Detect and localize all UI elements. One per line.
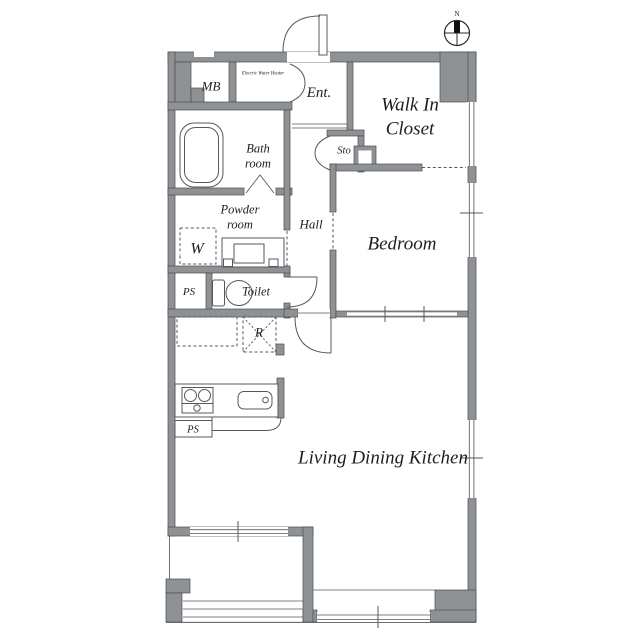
wall-segment	[206, 273, 212, 312]
label-entrance: Ent.	[306, 85, 332, 101]
wall-segment	[327, 130, 364, 136]
pillar-core	[359, 151, 372, 166]
label-powder-1: Powder	[220, 202, 260, 216]
wall-segment	[175, 62, 191, 104]
wall-segment	[166, 593, 182, 622]
wall-segment	[229, 62, 236, 102]
label-bathroom-2: room	[245, 156, 271, 170]
wall-segment	[168, 309, 290, 317]
label-storage: Sto	[337, 146, 350, 157]
wall-segment	[330, 164, 422, 171]
bathroom-folding-door	[246, 175, 274, 193]
wall-segment	[347, 62, 353, 130]
balcony-rails	[183, 601, 303, 617]
label-walk-in-closet-1: Walk In	[381, 95, 439, 116]
balcony-window	[190, 521, 288, 542]
label-washer: W	[190, 241, 205, 258]
wall-segment	[303, 527, 313, 622]
label-bathroom-1: Bath	[246, 141, 270, 155]
wall-segment	[166, 579, 190, 593]
label-refrigerator: R	[254, 325, 263, 340]
wall-segment	[276, 344, 284, 355]
entrance-step-lines	[292, 124, 347, 128]
floor-plan: N MB Electric Water Heater Ent. Walk In …	[0, 0, 640, 640]
label-toilet: Toilet	[242, 284, 271, 298]
compass-icon: N	[445, 10, 470, 46]
entrance-door-arc	[283, 16, 320, 52]
label-mb: MB	[201, 79, 221, 94]
counter-front-panel	[212, 418, 281, 431]
floor-plan-page: N MB Electric Water Heater Ent. Walk In …	[0, 0, 640, 640]
cupboard-space-box	[177, 317, 237, 346]
wall-segment	[168, 188, 244, 195]
compass-north-label: N	[454, 10, 459, 18]
water-heater-door-arcs	[290, 64, 305, 102]
label-water-heater: Electric Water Heater	[241, 72, 284, 77]
wall-segment	[430, 610, 476, 622]
ldk-door-arc	[295, 317, 331, 353]
bathtub-icon	[180, 123, 223, 187]
label-walk-in-closet-2: Closet	[386, 119, 435, 140]
wall-segment	[330, 250, 336, 318]
sink-icon	[238, 392, 272, 410]
wall-segment	[330, 164, 336, 212]
label-pipe-space-1: PS	[182, 286, 196, 298]
meter-box-hatch	[194, 51, 214, 57]
storage-door-arcs	[315, 136, 330, 170]
doors	[246, 15, 466, 353]
toilet-door-arc	[287, 277, 317, 307]
ldk-south-window	[317, 606, 430, 628]
label-ldk: Living Dining Kitchen	[297, 448, 468, 469]
bedroom-sliding-partition	[336, 306, 468, 322]
wall-segment	[168, 52, 175, 536]
sliding-panel	[347, 312, 457, 315]
wall-segment	[168, 102, 292, 110]
entrance-door-leaf	[319, 15, 327, 55]
wall-segment	[284, 110, 290, 230]
label-pipe-space-2: PS	[186, 425, 199, 436]
label-powder-2: room	[227, 217, 253, 231]
windows	[190, 51, 483, 628]
wall-segment	[284, 309, 298, 317]
vanity-icon	[222, 238, 284, 267]
label-hall: Hall	[298, 217, 323, 232]
label-bedroom: Bedroom	[368, 234, 437, 255]
bedroom-window	[460, 183, 483, 257]
closet-window	[467, 102, 477, 166]
stove-icon	[182, 388, 213, 414]
